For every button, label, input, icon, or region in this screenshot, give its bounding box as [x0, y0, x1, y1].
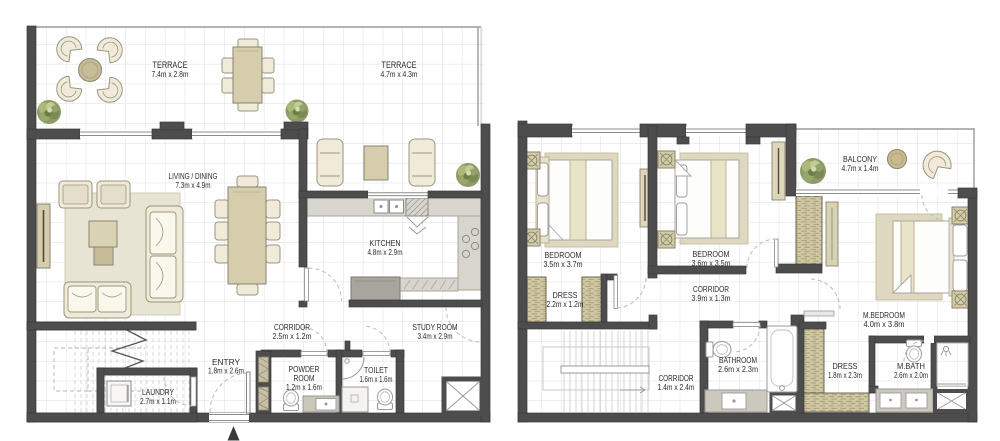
svg-text:3.9m x 1.3m: 3.9m x 1.3m — [692, 294, 731, 303]
svg-text:3.5m x 3.7m: 3.5m x 3.7m — [544, 260, 583, 269]
svg-text:ROOM: ROOM — [294, 373, 315, 383]
svg-text:7.4m x 2.8m: 7.4m x 2.8m — [152, 70, 189, 79]
svg-text:2.6m x 2.0m: 2.6m x 2.0m — [894, 371, 928, 380]
svg-text:DRESS: DRESS — [833, 361, 858, 371]
svg-text:3.4m x 2.9m: 3.4m x 2.9m — [418, 332, 453, 341]
svg-text:4.7m x 4.3m: 4.7m x 4.3m — [381, 70, 418, 79]
svg-text:1.2m x 1.6m: 1.2m x 1.6m — [286, 383, 322, 392]
svg-text:CORRIDOR: CORRIDOR — [274, 322, 310, 332]
svg-text:4.7m x 1.4m: 4.7m x 1.4m — [842, 164, 879, 173]
svg-text:STUDY ROOM: STUDY ROOM — [413, 322, 458, 332]
svg-text:3.6m x 3.5m: 3.6m x 3.5m — [692, 259, 731, 268]
svg-text:TOILET: TOILET — [364, 365, 389, 375]
svg-text:CORRIDOR: CORRIDOR — [659, 373, 694, 383]
svg-text:1.8m x 2.3m: 1.8m x 2.3m — [828, 371, 862, 380]
svg-text:BATHROOM: BATHROOM — [719, 355, 757, 365]
svg-text:LAUNDRY: LAUNDRY — [142, 387, 174, 397]
svg-text:ENTRY: ENTRY — [212, 357, 240, 367]
svg-text:2.6m x 2.3m: 2.6m x 2.3m — [718, 365, 758, 374]
svg-text:M.BATH: M.BATH — [897, 361, 925, 371]
svg-text:2.2m x 1.2m: 2.2m x 1.2m — [547, 300, 584, 309]
svg-text:2.7m x 1.1m: 2.7m x 1.1m — [140, 397, 176, 406]
svg-text:LIVING / DINING: LIVING / DINING — [169, 171, 218, 181]
svg-text:2.5m x 1.2m: 2.5m x 1.2m — [273, 332, 312, 341]
svg-text:BEDROOM: BEDROOM — [693, 249, 730, 259]
svg-text:CORRIDOR: CORRIDOR — [693, 284, 729, 294]
svg-text:DRESS: DRESS — [553, 290, 578, 300]
svg-text:4.8m x 2.9m: 4.8m x 2.9m — [368, 248, 403, 257]
svg-text:1.6m x 1.6m: 1.6m x 1.6m — [360, 375, 393, 384]
svg-text:M.BEDROOM: M.BEDROOM — [863, 310, 905, 320]
svg-text:BEDROOM: BEDROOM — [545, 250, 582, 260]
svg-text:1.8m x 2.6m: 1.8m x 2.6m — [208, 367, 244, 376]
svg-text:KITCHEN: KITCHEN — [370, 238, 401, 248]
svg-text:1.4m x 2.4m: 1.4m x 2.4m — [658, 383, 695, 392]
svg-text:7.3m x 4.9m: 7.3m x 4.9m — [176, 181, 211, 190]
svg-text:BALCONY: BALCONY — [843, 154, 877, 164]
svg-text:4.0m x 3.8m: 4.0m x 3.8m — [864, 320, 905, 329]
